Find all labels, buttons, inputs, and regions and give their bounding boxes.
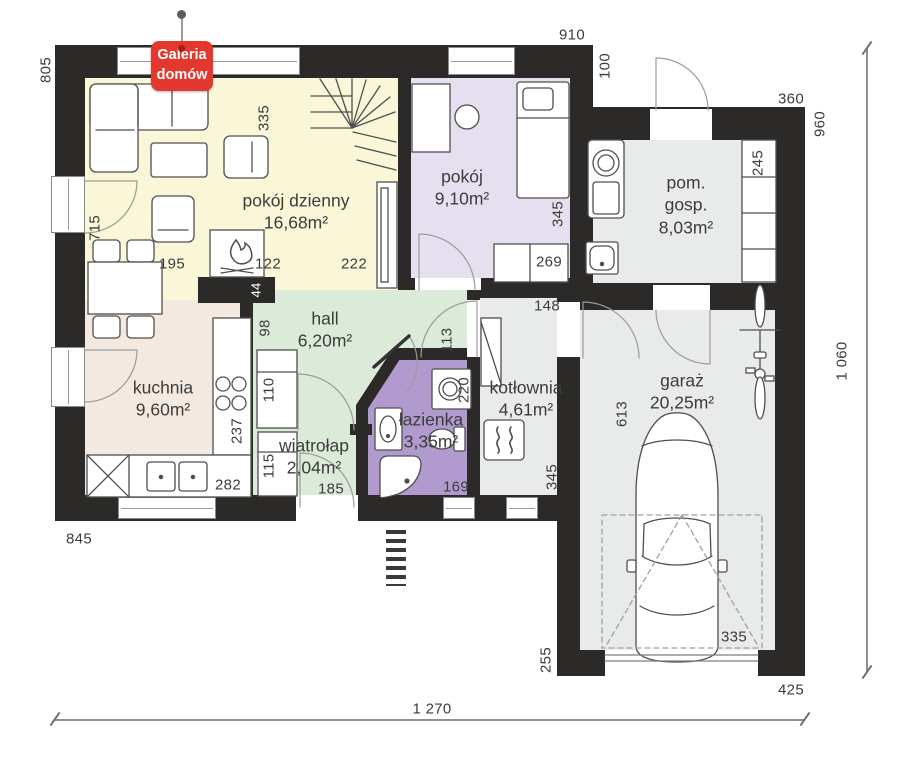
label-utility: pom. gosp. 8,03m² (654, 171, 718, 238)
dim-255: 255 (538, 647, 555, 673)
dim-113: 113 (439, 328, 456, 353)
label-bathroom: łazienka 3,35m² (399, 409, 463, 454)
dim-110: 110 (261, 378, 278, 403)
dim-220: 220 (456, 377, 473, 403)
dim-613: 613 (614, 401, 631, 427)
dim-335a: 335 (256, 105, 273, 131)
dim-360: 360 (778, 91, 804, 108)
floor-plan: Galeria domów pokój dzienny 16,68m² pokó… (0, 0, 905, 768)
room-name: hall (298, 308, 352, 330)
dining-table-icon (88, 240, 162, 338)
dim-269: 269 (536, 254, 562, 271)
dim-282: 282 (215, 477, 241, 494)
shower-icon (380, 456, 421, 498)
room-name: wiatrołap (279, 435, 349, 457)
label-garage: garaż 20,25m² (650, 370, 714, 415)
dim-845: 845 (66, 531, 92, 548)
entry-steps-icon (386, 530, 406, 586)
room-area: 9,60m² (133, 399, 193, 421)
logo-pin-ball (177, 10, 186, 19)
dim-1270: 1 270 (412, 701, 451, 718)
tv-cabinet-icon (377, 182, 397, 288)
coffee-table-icon (151, 143, 207, 177)
room-area: 3,35m² (399, 431, 463, 453)
room-name: kuchnia (133, 377, 193, 399)
dim-237: 237 (229, 418, 246, 444)
dim-425: 425 (778, 682, 804, 699)
bed-icon (517, 82, 569, 198)
room-area: 9,10m² (435, 188, 489, 210)
room-name: łazienka (399, 409, 463, 431)
dim-169: 169 (443, 479, 469, 496)
dim-100: 100 (597, 53, 614, 79)
car-icon (627, 413, 727, 662)
dim-line-right (866, 48, 868, 672)
utility-sink-icon (586, 242, 618, 274)
room-area: 6,20m² (298, 330, 352, 352)
logo-line2: domów (151, 66, 213, 86)
room-area: 4,61m² (490, 399, 563, 421)
room-name: kotłownia (490, 377, 563, 399)
room-area: 20,25m² (650, 392, 714, 414)
dim-44: 44 (249, 282, 264, 297)
armchair-icon (152, 196, 194, 242)
dim-222: 222 (341, 256, 367, 273)
dim-245: 245 (750, 150, 767, 176)
label-bedroom: pokój 9,10m² (435, 166, 489, 211)
dim-148: 148 (534, 298, 560, 315)
label-living: pokój dzienny 16,68m² (241, 190, 351, 235)
room-name: pokój dzienny (241, 190, 351, 212)
room-name: pom. gosp. (654, 171, 718, 216)
room-area: 8,03m² (654, 216, 718, 238)
label-boiler: kotłownia 4,61m² (490, 377, 563, 422)
dim-1060: 1 060 (834, 341, 851, 380)
dim-115: 115 (261, 454, 278, 479)
dim-345b: 345 (544, 464, 561, 490)
bicycle-icon (740, 285, 780, 419)
room-area: 16,68m² (241, 212, 351, 234)
dim-335b: 335 (721, 629, 747, 646)
dim-345a: 345 (550, 201, 567, 227)
dim-185: 185 (318, 481, 344, 498)
dim-715: 715 (87, 215, 104, 241)
room-name: garaż (650, 370, 714, 392)
staircase-icon (311, 79, 396, 170)
bathroom-door-leaf (374, 336, 409, 367)
washing-machine-icon (588, 140, 624, 218)
dim-line-bottom (55, 719, 805, 721)
logo-pin-dot (178, 45, 185, 52)
label-vestibule: wiatrołap 2,04m² (279, 435, 349, 480)
label-kitchen: kuchnia 9,60m² (133, 377, 193, 422)
room-name: pokój (435, 166, 489, 188)
dim-960: 960 (812, 111, 829, 137)
room-area: 2,04m² (279, 457, 349, 479)
dim-805: 805 (38, 57, 55, 83)
desk-icon (412, 84, 479, 152)
dim-122: 122 (255, 256, 281, 273)
heater-icon (484, 420, 524, 460)
label-hall: hall 6,20m² (298, 308, 352, 353)
dim-910: 910 (559, 27, 585, 44)
dim-98: 98 (257, 319, 274, 336)
armchair-icon (224, 136, 268, 178)
dim-195: 195 (159, 256, 185, 273)
